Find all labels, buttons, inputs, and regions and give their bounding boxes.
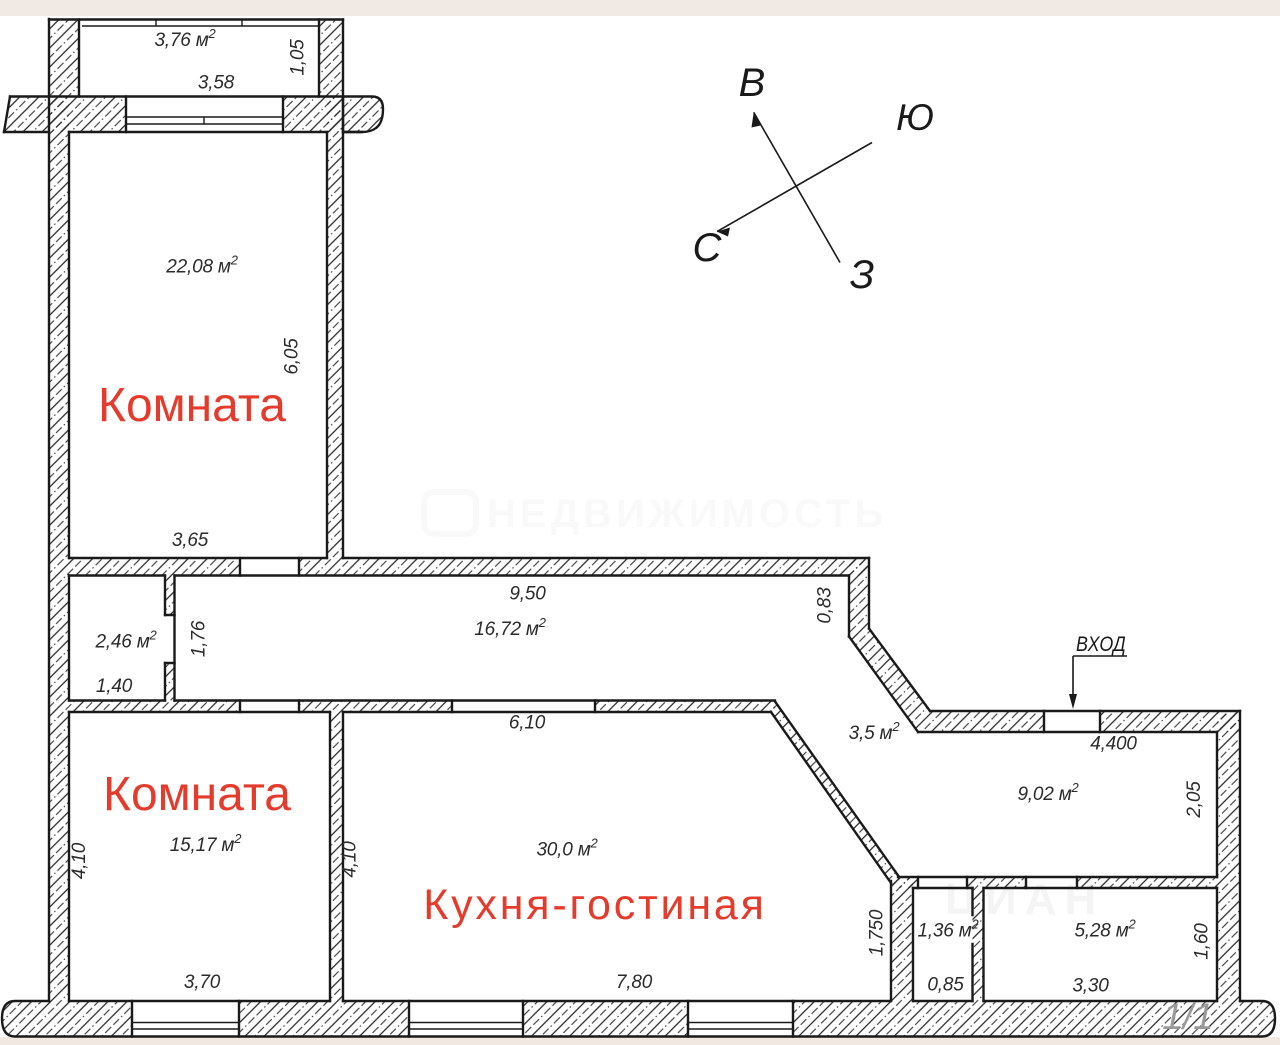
svg-text:НЕДВИЖИМОСТЬ: НЕДВИЖИМОСТЬ bbox=[487, 492, 887, 536]
svg-text:2,05: 2,05 bbox=[1184, 781, 1205, 819]
svg-text:4,10: 4,10 bbox=[340, 841, 361, 878]
svg-text:3,65: 3,65 bbox=[172, 530, 209, 551]
svg-text:15,17 м2: 15,17 м2 bbox=[170, 831, 242, 856]
svg-text:1,05: 1,05 bbox=[288, 39, 309, 76]
svg-text:С: С bbox=[693, 226, 723, 270]
svg-text:1,40: 1,40 bbox=[96, 676, 133, 697]
svg-text:3,70: 3,70 bbox=[184, 972, 221, 993]
svg-text:9,50: 9,50 bbox=[509, 584, 546, 605]
svg-text:6,10: 6,10 bbox=[509, 713, 546, 734]
svg-text:Комната: Комната bbox=[103, 768, 291, 821]
svg-text:Кухня-гостиная: Кухня-гостиная bbox=[423, 881, 766, 929]
svg-text:3,58: 3,58 bbox=[198, 73, 235, 94]
svg-text:3,76 м2: 3,76 м2 bbox=[154, 26, 216, 51]
svg-text:ВХОД: ВХОД bbox=[1076, 633, 1126, 657]
svg-text:22,08 м2: 22,08 м2 bbox=[165, 253, 238, 278]
svg-text:0,85: 0,85 bbox=[927, 975, 964, 996]
svg-text:В: В bbox=[739, 61, 766, 105]
svg-text:6,05: 6,05 bbox=[282, 338, 303, 375]
svg-text:9,02 м2: 9,02 м2 bbox=[1017, 780, 1079, 805]
svg-text:1/1: 1/1 bbox=[1162, 996, 1213, 1037]
svg-text:Ю: Ю bbox=[896, 97, 934, 138]
svg-text:4,400: 4,400 bbox=[1090, 734, 1137, 755]
svg-text:1,36 м2: 1,36 м2 bbox=[917, 917, 979, 942]
svg-text:5,28 м2: 5,28 м2 bbox=[1074, 917, 1136, 942]
svg-text:Комната: Комната bbox=[98, 379, 286, 432]
svg-text:2,46 м2: 2,46 м2 bbox=[94, 628, 157, 653]
svg-text:1,750: 1,750 bbox=[867, 909, 888, 956]
svg-text:4,10: 4,10 bbox=[69, 842, 90, 879]
svg-text:7,80: 7,80 bbox=[616, 972, 653, 993]
svg-text:З: З bbox=[850, 253, 875, 297]
svg-text:0,83: 0,83 bbox=[815, 587, 836, 624]
svg-text:16,72 м2: 16,72 м2 bbox=[474, 615, 546, 640]
svg-text:1,76: 1,76 bbox=[189, 620, 210, 657]
svg-text:3,30: 3,30 bbox=[1072, 976, 1109, 997]
svg-text:30,0 м2: 30,0 м2 bbox=[536, 836, 598, 861]
svg-text:1,60: 1,60 bbox=[1192, 923, 1213, 960]
